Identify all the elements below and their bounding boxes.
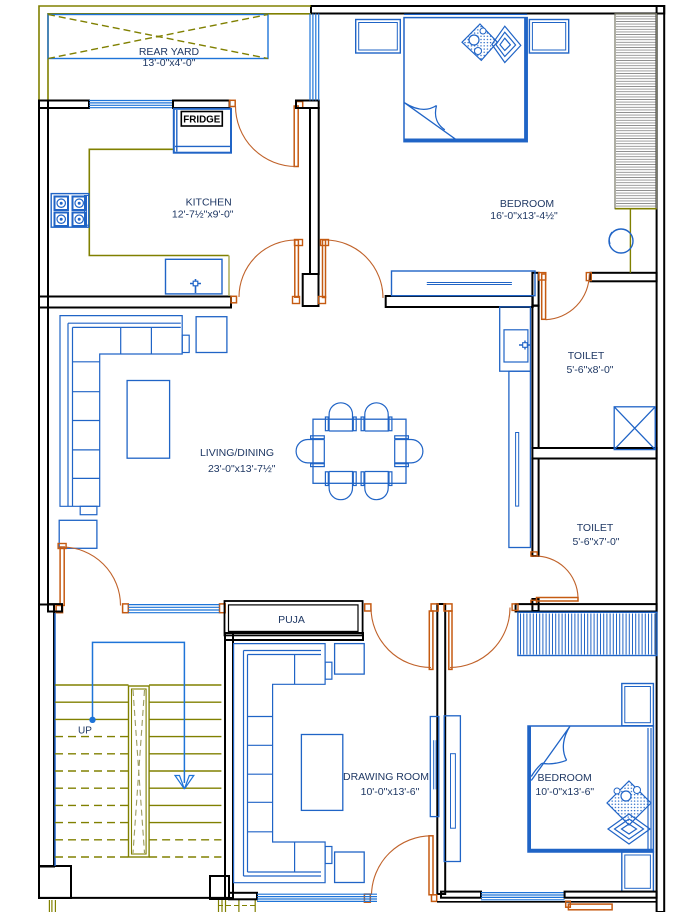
svg-text:KITCHEN: KITCHEN	[186, 197, 232, 209]
svg-text:TOILET: TOILET	[568, 350, 605, 362]
svg-text:DRAWING ROOM: DRAWING ROOM	[343, 771, 429, 783]
svg-text:PUJA: PUJA	[278, 614, 305, 626]
svg-text:23'-0"x13'-7½": 23'-0"x13'-7½"	[208, 463, 276, 475]
svg-text:10'-0"x13'-6": 10'-0"x13'-6"	[361, 786, 420, 798]
svg-text:BEDROOM: BEDROOM	[500, 198, 554, 210]
svg-text:UP: UP	[78, 726, 92, 737]
svg-text:16'-0"x13'-4½": 16'-0"x13'-4½"	[490, 210, 558, 222]
svg-text:5'-6"x8'-0": 5'-6"x8'-0"	[566, 364, 613, 376]
svg-text:TOILET: TOILET	[577, 522, 614, 534]
svg-text:13'-0"x4'-0": 13'-0"x4'-0"	[143, 57, 196, 69]
svg-text:12'-7½"x9'-0": 12'-7½"x9'-0"	[172, 209, 234, 221]
svg-text:10'-0"x13'-6": 10'-0"x13'-6"	[535, 786, 594, 798]
svg-text:FRIDGE: FRIDGE	[183, 114, 220, 126]
svg-text:5'-6"x7'-0": 5'-6"x7'-0"	[572, 536, 619, 548]
svg-text:LIVING/DINING: LIVING/DINING	[200, 447, 274, 459]
svg-text:BEDROOM: BEDROOM	[538, 772, 592, 784]
